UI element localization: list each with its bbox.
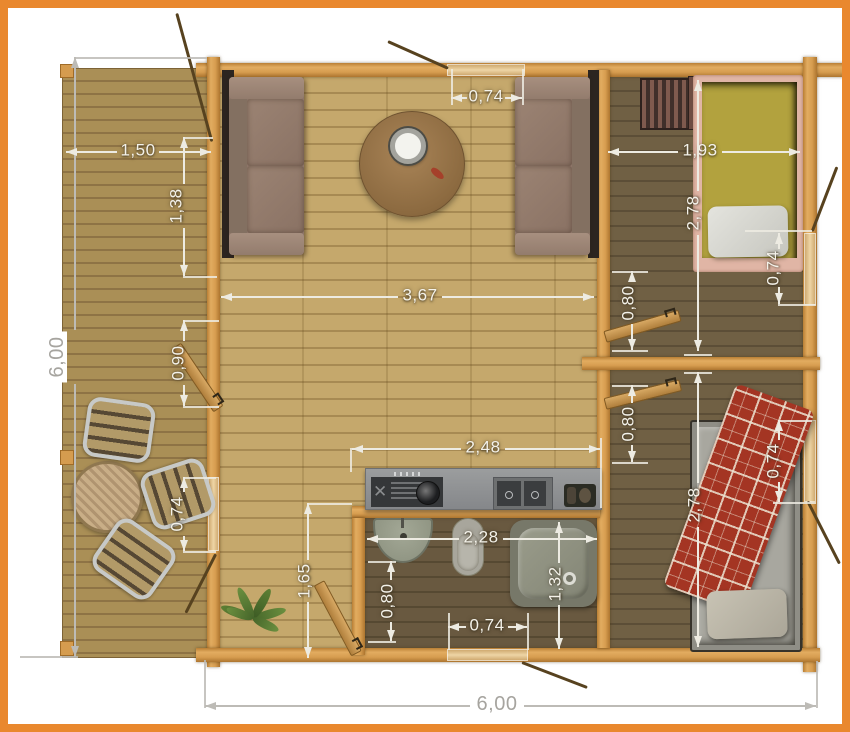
loft-ladder — [640, 78, 694, 130]
extension-line — [773, 502, 816, 504]
dimension-line — [183, 477, 185, 492]
bottom-window-opening — [447, 649, 528, 661]
dim-label: 1,32 — [547, 566, 564, 601]
extension-line — [745, 230, 812, 232]
bottom-window-sash — [522, 661, 588, 688]
sofa-armrest — [515, 77, 590, 99]
sofa-armrest — [229, 233, 304, 255]
extension-line — [307, 503, 352, 505]
sofa-cushion — [247, 99, 304, 166]
pot — [416, 481, 440, 505]
extension-line — [451, 69, 453, 105]
dim-label: 1,50 — [120, 142, 155, 159]
extension-line — [522, 69, 524, 105]
bathroom-left-wall — [352, 518, 365, 655]
dimension-line — [74, 57, 76, 330]
dimension-line — [778, 233, 780, 249]
dimension-line — [352, 448, 461, 450]
dimension-line — [183, 385, 185, 406]
extension-line — [183, 406, 219, 408]
dimension-line — [697, 235, 699, 351]
extension-line — [816, 661, 818, 708]
extension-line — [527, 613, 529, 650]
extension-line — [448, 613, 450, 650]
dimension-line — [159, 151, 211, 153]
shower-drain — [563, 572, 576, 585]
dimension-line — [503, 538, 597, 540]
sofa-backrest — [572, 99, 590, 233]
bowl — [390, 128, 426, 164]
faucet-dot — [505, 491, 513, 499]
dimension-line — [524, 705, 816, 707]
extension-line — [612, 462, 648, 464]
extension-line — [20, 656, 78, 658]
dim-label: 0,80 — [620, 285, 637, 320]
dimension-line — [183, 320, 185, 341]
dim-label: 1,93 — [682, 142, 717, 159]
dimension-line — [631, 385, 633, 403]
dim-label: 2,48 — [465, 439, 500, 456]
dimension-line — [183, 228, 185, 276]
extension-line — [612, 385, 648, 387]
dim-label: 6,00 — [47, 332, 67, 383]
top-window-opening — [447, 64, 525, 76]
deck-chair — [81, 396, 157, 465]
dim-label: 0,90 — [170, 345, 187, 380]
dim-label: 0,80 — [379, 583, 396, 618]
dim-label: 1,65 — [296, 563, 313, 598]
dimension-line — [778, 420, 780, 440]
dimension-line — [778, 482, 780, 502]
extension-line — [612, 350, 648, 352]
extension-line — [684, 354, 712, 356]
dimension-line — [390, 622, 392, 641]
dimension-line — [183, 137, 185, 184]
dimension-line — [631, 445, 633, 462]
extension-line — [368, 641, 396, 643]
burner-icon: ✕ — [373, 479, 387, 505]
sofa-right — [515, 77, 590, 255]
dimension-line — [697, 527, 699, 647]
faucet-dot — [531, 491, 539, 499]
dimension-line — [442, 296, 594, 298]
dimension-line — [66, 151, 117, 153]
coffee-table — [359, 111, 465, 217]
sofa-armrest — [229, 77, 304, 99]
dim-label: 6,00 — [472, 694, 523, 714]
dimension-line — [183, 536, 185, 551]
jar — [579, 488, 591, 503]
dim-label: 2,28 — [463, 529, 498, 546]
dimension-line — [390, 561, 392, 580]
dimension-line — [505, 448, 600, 450]
dimension-line — [505, 97, 522, 99]
sofa-cushion — [515, 166, 572, 233]
deck-post — [60, 450, 74, 465]
dimension-line — [722, 151, 800, 153]
dimension-line — [558, 605, 560, 649]
extension-line — [183, 276, 217, 278]
dim-label: 3,67 — [402, 287, 437, 304]
kitchen-sink — [493, 477, 553, 510]
extension-line — [204, 660, 206, 708]
dim-label: 1,38 — [168, 188, 185, 223]
extension-line — [183, 320, 219, 322]
dim-label: 2,78 — [685, 195, 702, 230]
floor-plan: ✕ ✕ — [0, 0, 850, 732]
extension-line — [183, 551, 216, 553]
jar — [567, 487, 576, 504]
dimension-line — [697, 80, 699, 191]
extension-line — [778, 304, 816, 306]
dimension-line — [74, 384, 76, 657]
dimension-line — [778, 287, 780, 304]
dim-label: 2,78 — [686, 487, 703, 522]
dimension-line — [631, 324, 633, 350]
dimension-line — [631, 271, 633, 282]
dimension-line — [367, 538, 459, 540]
dimension-line — [558, 522, 560, 563]
dim-label: 0,74 — [765, 250, 782, 285]
dimension-line — [697, 372, 699, 483]
counter-accessories — [564, 484, 596, 507]
extension-line — [368, 561, 396, 563]
dimension-line — [307, 503, 309, 560]
extension-line — [778, 420, 812, 422]
dim-label: 0,74 — [765, 443, 782, 478]
dimension-line — [451, 97, 467, 99]
sofa-cushion — [247, 166, 304, 233]
knob-dots — [394, 472, 420, 476]
dimension-line — [608, 151, 678, 153]
dim-label: 0,74 — [169, 496, 186, 531]
sofa-cushion — [515, 99, 572, 166]
extension-line — [612, 271, 648, 273]
extension-line — [74, 57, 207, 59]
sofa-backrest — [229, 99, 247, 233]
extension-line — [600, 438, 602, 508]
dimension-line — [221, 296, 398, 298]
sofa-armrest — [515, 233, 590, 255]
extension-line — [183, 477, 216, 479]
bedroom1-window-opening — [804, 233, 816, 305]
extension-line — [350, 448, 352, 472]
bed2-pillow — [706, 589, 788, 640]
dim-label: 0,80 — [620, 406, 637, 441]
kitchen-counter: ✕ ✕ — [365, 468, 602, 510]
dim-label: 0,74 — [468, 88, 503, 105]
dimension-line — [508, 626, 527, 628]
dim-label: 0,74 — [469, 617, 504, 634]
bedroom-divider-wall — [582, 357, 820, 370]
washbasin-faucet — [401, 518, 404, 528]
extension-line — [684, 372, 712, 374]
dimension-line — [448, 626, 466, 628]
sofa-left — [229, 77, 304, 255]
extension-line — [183, 137, 213, 139]
dimension-line — [307, 602, 309, 658]
dimension-line — [205, 705, 470, 707]
